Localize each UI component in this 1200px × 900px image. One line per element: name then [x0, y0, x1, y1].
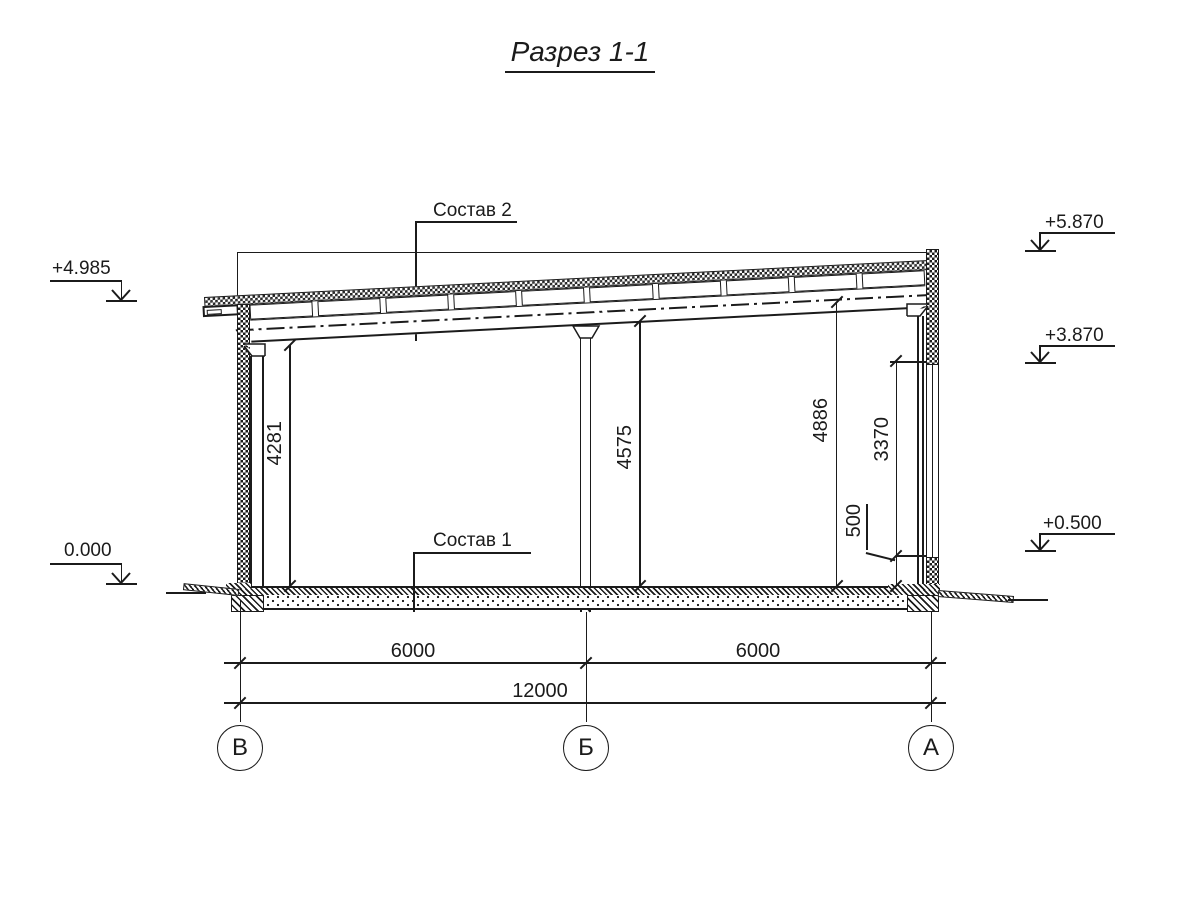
elevation-underline — [50, 280, 122, 282]
right-window-midline — [932, 364, 933, 557]
axis-bubble-b: Б — [563, 725, 609, 771]
floor-composition-underline — [413, 552, 531, 554]
elevation-left-zero: 0.000 — [64, 540, 112, 562]
dim-text-span1: 6000 — [363, 640, 463, 663]
elevation-arrow — [1023, 538, 1059, 554]
floor-composition-label: Состав 1 — [433, 530, 512, 552]
axis-label-v: В — [232, 734, 248, 762]
right-pilaster-inner — [922, 316, 924, 587]
left-apron-tip-line — [166, 592, 206, 594]
drawing-sheet: Разрез 1-1 Состав 2 — [0, 0, 1200, 900]
middle-column-capital — [571, 325, 601, 339]
elevation-underline — [1039, 345, 1115, 347]
elevation-arrow — [1023, 350, 1059, 366]
ext-line-axis-b — [586, 612, 587, 722]
ext-line-window-head — [890, 361, 926, 363]
left-column-face-inner — [262, 356, 264, 587]
floor-slab-concrete — [237, 595, 938, 610]
elevation-arrow — [1023, 238, 1059, 254]
dim-line-4575 — [639, 321, 641, 586]
dim-line-4886 — [836, 302, 838, 586]
roof-composition-underline — [415, 221, 517, 223]
left-column-face-outer — [250, 356, 252, 587]
axis-label-a: А — [923, 734, 939, 762]
roof-composition-label: Состав 2 — [433, 200, 512, 222]
ext-line-window-sill — [897, 555, 926, 557]
right-foundation — [907, 595, 939, 612]
elevation-arrow — [104, 571, 140, 587]
dim-text-4886: 4886 — [810, 398, 833, 443]
dim-text-3370: 3370 — [871, 417, 894, 462]
axis-label-b: Б — [578, 734, 594, 762]
dim-text-total: 12000 — [480, 680, 600, 703]
floor-composition-leader — [413, 552, 415, 612]
elevation-right-window-sill: +0.500 — [1043, 513, 1102, 535]
right-pilaster-outer — [917, 316, 919, 587]
top-extension-line — [237, 252, 931, 253]
elevation-underline — [1039, 533, 1115, 535]
eave-fascia-slot — [207, 309, 222, 315]
elevation-left-roof: +4.985 — [52, 258, 111, 280]
elevation-right-parapet: +5.870 — [1045, 212, 1104, 234]
dim-500-leader — [866, 552, 895, 561]
right-apron — [938, 590, 1014, 603]
left-foundation — [231, 595, 264, 612]
right-apron-tip-line — [1008, 599, 1048, 601]
elevation-arrow — [104, 288, 140, 304]
drawing-title: Разрез 1-1 — [440, 36, 720, 73]
middle-column — [580, 338, 591, 588]
eave-fascia — [202, 304, 239, 317]
elevation-right-window-head: +3.870 — [1045, 325, 1104, 347]
roof-assembly — [204, 260, 934, 345]
dim-text-span2: 6000 — [708, 640, 808, 663]
elevation-underline — [50, 563, 122, 565]
axis-bubble-a: А — [908, 725, 954, 771]
dim-text-4281: 4281 — [264, 421, 287, 466]
dim-500-underline — [866, 504, 868, 550]
left-column-capital — [243, 343, 267, 357]
elevation-underline — [1039, 232, 1115, 234]
right-column-capital — [905, 303, 929, 317]
drawing-title-text: Разрез 1-1 — [505, 36, 656, 73]
dim-text-500: 500 — [843, 504, 866, 537]
dim-text-4575: 4575 — [614, 425, 637, 470]
axis-bubble-v: В — [217, 725, 263, 771]
dim-line-4281 — [289, 345, 291, 586]
ext-line-axis-a — [931, 612, 932, 722]
